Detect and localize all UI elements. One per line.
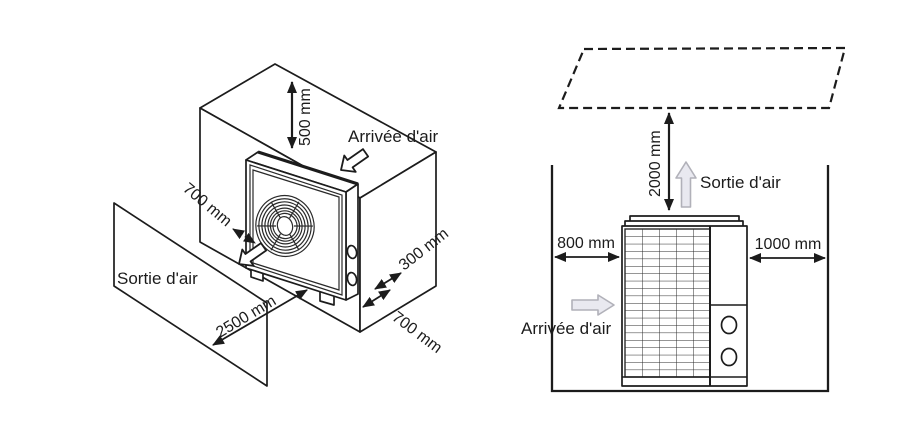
- pipe-port-front-bottom: [722, 349, 737, 366]
- heat-pump-unit-front: [622, 216, 747, 386]
- pipe-port-front-top: [722, 317, 737, 334]
- air-inlet-right-arrow-icon: [572, 295, 614, 315]
- dim-label-1000mm: 1000 mm: [755, 236, 822, 253]
- air-outlet-up-arrow-icon: [676, 162, 696, 207]
- left-diagram-isometric-view: 500 mm 700 mm 2500 mm 300 mm 700 mm Arri…: [114, 64, 452, 386]
- air-outlet-label-right: Sortie d'air: [700, 173, 781, 192]
- ceiling-dashed-plane: [559, 48, 845, 108]
- dim-label-2000mm: 2000 mm: [647, 130, 664, 197]
- air-inlet-label-left: Arrivée d'air: [348, 127, 439, 146]
- dim-label-500mm: 500 mm: [297, 88, 314, 146]
- air-inlet-label-right: Arrivée d'air: [521, 319, 612, 338]
- air-outlet-label-left: Sortie d'air: [117, 269, 198, 288]
- dim-label-700mm-side: 700 mm: [389, 309, 445, 357]
- evaporator-coil-grid: [625, 229, 710, 377]
- heat-pump-clearance-diagram: 500 mm 700 mm 2500 mm 300 mm 700 mm Arri…: [0, 0, 920, 442]
- clearance-diagram-page: 500 mm 700 mm 2500 mm 300 mm 700 mm Arri…: [0, 0, 920, 442]
- right-diagram-front-view: 2000 mm Sortie d'air 800 mm 1000 mm Arri…: [521, 48, 845, 391]
- dim-label-800mm: 800 mm: [557, 235, 615, 252]
